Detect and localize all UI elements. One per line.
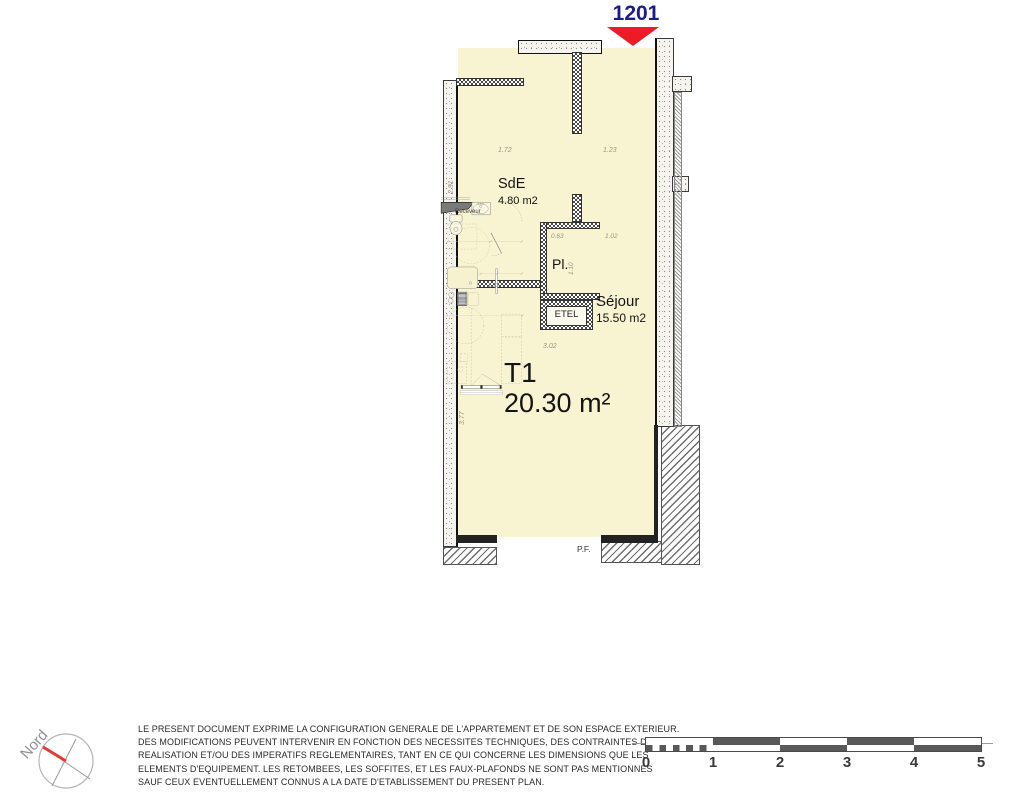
scale-segment [914,745,981,752]
scale-bar-body [645,737,982,752]
dim-entry-width: 1.23 [603,147,617,154]
wall-bottom-left-segment [456,535,497,543]
dim-bath-width: 1.72 [498,147,512,154]
wall-bottom-right-segment [601,535,657,543]
apartment-type-label: T1 [504,357,537,389]
wall-right [655,38,674,427]
dim-closet-depth: 1.10 [568,262,575,275]
scale-bar: 0 1 2 3 4 5 [633,734,993,776]
entry-arrow-icon [606,26,660,48]
dim-bath-depth: 2.91 [448,180,455,194]
exterior-wall-hatch-bottom-left [443,547,497,565]
dim-closet-side: 1.02 [605,233,618,240]
wall-right-insulation [674,92,682,427]
scale-tick-label: 3 [837,754,857,771]
partition-closet-left [540,222,547,300]
window-label-pf: P.F. [577,544,591,554]
dim-closet-width: 0.63 [551,233,564,240]
partition-closet-bottom [540,293,600,300]
room-label-sde: SdE [498,176,525,192]
wall-right-lower [654,425,658,543]
scale-segment [780,745,847,752]
apartment-area-label: 20.30 m² [504,388,611,419]
scale-tick-label: 0 [636,754,656,771]
partition-bath-north [456,78,524,86]
scale-tick-label: 4 [904,754,924,771]
disclaimer-line: ELEMENTS D'EQUIPEMENT. LES RETOMBEES, LE… [138,763,679,776]
exterior-wall-hatch-right [661,425,700,565]
room-label-sejour: Séjour [596,293,639,310]
disclaimer-line: SAUF CEUX EVENTUELLEMENT CONNUS A LA DAT… [138,776,679,789]
dim-sejour-depth: 3.77 [459,411,466,425]
wall-right-step-1 [672,76,692,92]
disclaimer-line: LE PRESENT DOCUMENT EXPRIME LA CONFIGURA… [138,723,679,736]
dim-kitchen-width: 1.23 [488,283,499,289]
scale-tick-label: 2 [770,754,790,771]
partition-closet-top [540,222,600,229]
scale-segment [713,745,780,752]
scale-segment [646,745,713,752]
disclaimer-line: REALISATION ET/OU DES IMPERATIFS REGLEME… [138,749,679,762]
scale-tick-label: 1 [703,754,723,771]
partition-bath-east-stub [572,194,582,222]
partition-bath-east [572,52,582,134]
wall-left [443,80,458,547]
disclaimer-text: LE PRESENT DOCUMENT EXPRIME LA CONFIGURA… [138,723,679,789]
scale-tick-label: 5 [971,754,991,771]
compass-north-needle [43,747,66,761]
unit-number-label: 1201 [604,2,668,26]
disclaimer-line: DES MODIFICATIONS PEUVENT INTERVENIR EN … [138,736,679,749]
shower-tray-label: Receveur [455,209,481,215]
wall-top [518,40,602,54]
partition-bath-south [456,280,545,288]
floor-plan-page: 1201 [0,0,1015,800]
room-label-pl: Pl. [552,256,568,272]
scale-segment [847,745,914,752]
room-area-sejour: 15.50 m2 [596,311,646,325]
dim-sejour-width: 3.02 [543,343,557,350]
room-area-sde: 4.80 m2 [498,195,538,207]
etel-label: ETEL [546,309,587,320]
